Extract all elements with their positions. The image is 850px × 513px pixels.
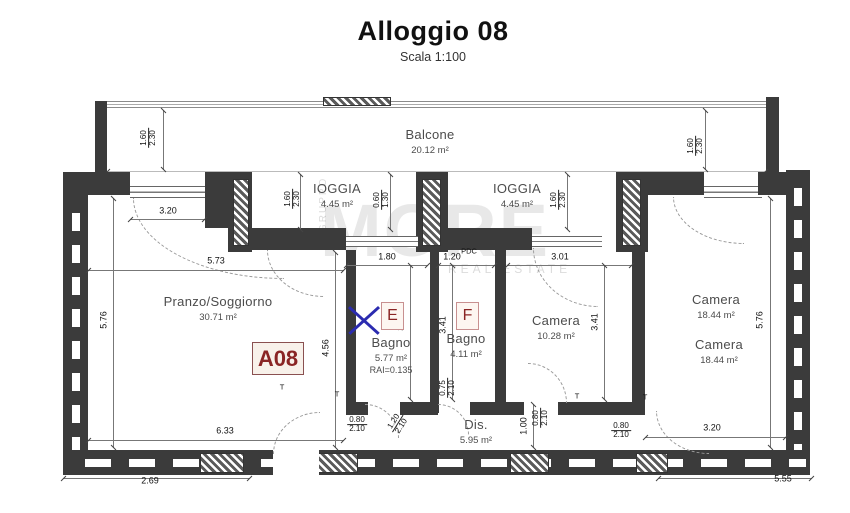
dimension-label: 5.76 bbox=[755, 309, 764, 331]
room-label: Pranzo/Soggiorno30.71 m² bbox=[164, 293, 273, 323]
wall-segment bbox=[766, 97, 779, 172]
dimension-label: 1.602.30 bbox=[140, 128, 158, 148]
wall-segment bbox=[648, 172, 704, 195]
door-arc bbox=[133, 198, 284, 279]
dimension-label: 5.73 bbox=[205, 256, 227, 265]
dimension-label: 3.41 bbox=[590, 311, 599, 333]
wall-segment bbox=[758, 172, 788, 195]
dimension-label: 0.752.10 bbox=[439, 378, 457, 398]
wall-hatch-pier bbox=[622, 179, 641, 246]
wall-hatch-pier bbox=[422, 179, 441, 246]
floor-plan-page: Alloggio 08 Scala 1:100 MORE REAL ESTATE… bbox=[0, 0, 850, 513]
scale-label: Scala 1:100 bbox=[0, 50, 850, 64]
dimension-label: 3.20 bbox=[157, 206, 179, 215]
room-code-badge: E bbox=[381, 302, 404, 330]
dimension-line bbox=[335, 252, 336, 448]
dimension-line bbox=[507, 265, 632, 266]
window bbox=[532, 236, 602, 247]
wall-hatch-pier bbox=[636, 453, 668, 473]
dimension-line bbox=[88, 440, 344, 441]
fixture-marker: PDC bbox=[461, 247, 477, 256]
wall-segment bbox=[495, 250, 506, 413]
dimension-line bbox=[130, 219, 205, 220]
dimension-label: 1.20 bbox=[441, 252, 463, 261]
railing-hatch-strip bbox=[323, 97, 391, 106]
dimension-line bbox=[604, 265, 605, 400]
room-code-badge: F bbox=[456, 302, 479, 330]
dimension-label: 3.41 bbox=[438, 314, 447, 336]
dimension-line bbox=[438, 265, 495, 266]
dimension-label: 5.55 bbox=[772, 474, 794, 483]
room-label: Dis.5.95 m² bbox=[460, 416, 492, 446]
wall-segment bbox=[558, 402, 645, 415]
unit-badge: A08 bbox=[252, 342, 304, 375]
wall-right-outer bbox=[786, 170, 810, 475]
fixture-marker: T bbox=[643, 393, 648, 402]
dimension-line bbox=[346, 265, 428, 266]
dimension-line bbox=[705, 110, 706, 170]
dimension-line bbox=[113, 198, 114, 448]
dimension-line bbox=[88, 270, 344, 271]
door-arc bbox=[273, 412, 320, 454]
room-label: IOGGIA4.45 m² bbox=[313, 180, 361, 210]
wall-hatch-pier bbox=[510, 453, 549, 473]
dimension-label: 6.33 bbox=[214, 426, 236, 435]
door-arc bbox=[673, 197, 744, 244]
wall-segment bbox=[470, 402, 524, 415]
dimension-label: 0.802.10 bbox=[532, 408, 550, 428]
dimension-label: 4.56 bbox=[321, 337, 330, 359]
dimension-label: 0.601.30 bbox=[373, 190, 391, 210]
wall-hatch-pier bbox=[200, 453, 244, 473]
wall-bottom-outer bbox=[63, 450, 810, 475]
wall-segment bbox=[632, 250, 645, 413]
room-label: Camera18.44 m² bbox=[692, 291, 740, 321]
balcony-railing bbox=[95, 101, 768, 108]
room-label: Balcone20.12 m² bbox=[405, 126, 454, 156]
dimension-label: 1.602.30 bbox=[550, 190, 568, 210]
fixture-x-mark bbox=[346, 303, 382, 337]
dimension-label: 2.69 bbox=[139, 476, 161, 485]
room-label: Camera18.44 m² bbox=[695, 336, 743, 366]
wall-segment bbox=[400, 402, 438, 415]
dimension-line bbox=[163, 110, 164, 170]
page-title: Alloggio 08 bbox=[0, 16, 850, 47]
dimension-line bbox=[410, 265, 411, 400]
dimension-label: 0.802.10 bbox=[347, 416, 367, 434]
room-label: Camera10.28 m² bbox=[532, 312, 580, 342]
wall-segment bbox=[95, 101, 107, 172]
window bbox=[130, 186, 205, 198]
fixture-marker: T bbox=[575, 392, 580, 401]
wall-hatch-pier bbox=[318, 453, 358, 473]
dimension-label: 1.80 bbox=[376, 252, 398, 261]
room-label: Bagno4.11 m² bbox=[446, 330, 485, 360]
dimension-line bbox=[770, 198, 771, 448]
room-label: IOGGIA4.45 m² bbox=[493, 180, 541, 210]
room-label: Bagno5.77 m²RAI=0.135 bbox=[370, 334, 413, 375]
dimension-label: 1.602.30 bbox=[687, 136, 705, 156]
dimension-label: 3.01 bbox=[549, 252, 571, 261]
window bbox=[346, 236, 418, 247]
fixture-marker: T bbox=[335, 390, 340, 399]
door-arc bbox=[267, 250, 324, 297]
dimension-label: 3.20 bbox=[701, 423, 723, 432]
dimension-label: 1.602.30 bbox=[284, 189, 302, 209]
dimension-line bbox=[645, 437, 786, 438]
fixture-marker: T bbox=[280, 383, 285, 392]
dimension-label: 5.76 bbox=[99, 309, 108, 331]
wall-segment bbox=[63, 172, 130, 195]
dimension-label: 1.00 bbox=[519, 415, 528, 437]
door-arc bbox=[528, 363, 567, 403]
wall-left-outer bbox=[63, 195, 88, 475]
dimension-label: 0.802.10 bbox=[611, 422, 631, 440]
